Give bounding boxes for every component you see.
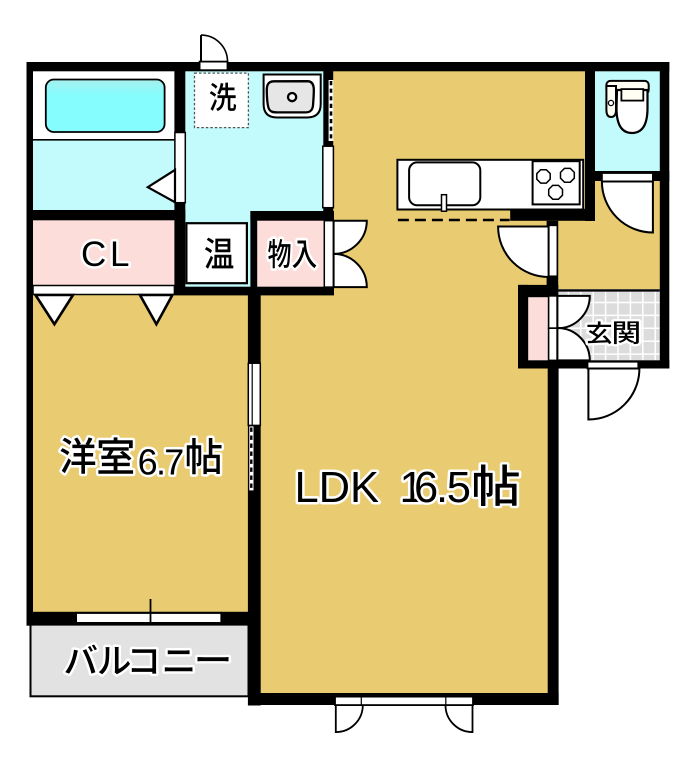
svg-text:7: 7: [164, 441, 184, 482]
svg-text:5: 5: [447, 464, 471, 512]
svg-text:6: 6: [138, 441, 158, 482]
svg-text:LDK: LDK: [295, 464, 380, 512]
svg-text:CL: CL: [81, 235, 130, 274]
svg-text:6: 6: [414, 464, 438, 512]
